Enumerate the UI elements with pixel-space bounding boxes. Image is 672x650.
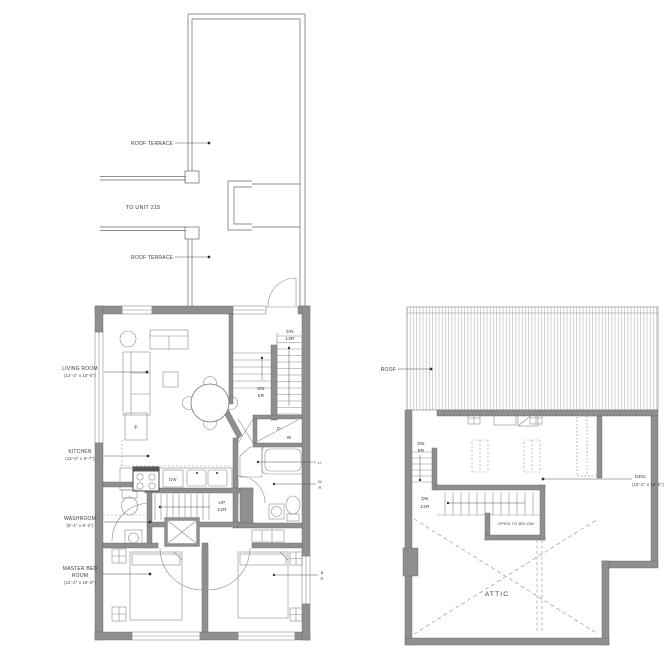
entry-door-swing <box>268 278 296 306</box>
roof-terrace-label-upper: ROOF TERRACE <box>131 141 210 147</box>
kitchen-dim: (12'-0" x 9'-7") <box>65 456 95 461</box>
up-12r-label-line1: UP <box>218 500 225 506</box>
stairs-dn-12r: DN 12R <box>420 492 543 515</box>
stair-stringer <box>271 345 277 420</box>
plant <box>120 331 136 347</box>
furnace-closet: F <box>125 413 147 440</box>
master-bedroom <box>112 548 202 621</box>
bathroom-sink <box>269 504 284 519</box>
bedroom-tag: B R <box>273 570 324 581</box>
bedroom-tag-line2: R <box>320 576 323 581</box>
coffee-table <box>163 372 178 387</box>
kitchen: DW <box>120 440 232 491</box>
living-room-dim: (14'-2" x 10'-5") <box>64 373 96 378</box>
washroom-tag: W R <box>273 479 322 490</box>
window-bedroom2-south <box>238 632 295 640</box>
roof-area <box>407 307 658 410</box>
dn-6r-label-line1: DN <box>417 441 425 447</box>
desk-dashed <box>524 440 540 472</box>
den-furniture <box>468 410 542 472</box>
washroom-label: WASHROOM (8'-4" x 8'-2") <box>64 516 151 528</box>
bed2 <box>238 552 288 618</box>
railing-strip <box>577 416 597 476</box>
window-living-room <box>95 332 103 443</box>
dining-table <box>191 384 229 422</box>
dn-5r-label-line2: 5R <box>258 393 265 399</box>
floor-plan-drawing: ROOF TERRACE TO UNIT 215 ROOF TERRACE <box>0 0 672 650</box>
dryer-label: D <box>277 426 281 432</box>
window-top-right <box>233 306 266 314</box>
kitchen-label: KITCHEN (12'-0" x 9'-7") <box>65 449 149 461</box>
sofa <box>123 352 150 415</box>
nightstand <box>112 549 126 563</box>
attic-label: ATTIC <box>485 591 509 598</box>
window-top-left <box>122 306 152 314</box>
den-label: DEN (19'-2" x 19'-0") <box>542 474 665 487</box>
washroom <box>103 490 150 546</box>
window-master-bedroom <box>132 632 200 640</box>
roof-terrace-outline <box>100 14 305 306</box>
living-room-name: LIVING ROOM <box>62 366 98 372</box>
dn-12r-label-line1: DN <box>421 496 429 502</box>
washer-label: W <box>287 435 292 441</box>
roof-terrace-lower-text: ROOF TERRACE <box>131 255 173 261</box>
open-to-below-label: OPEN TO BELOW <box>498 521 534 526</box>
dn-6r-label-line2: 6R <box>418 448 425 454</box>
stairs-dn-13r: DN 13R <box>277 329 302 420</box>
up-12r-label-line2: 12R <box>217 507 227 513</box>
roof-label-text: ROOF <box>381 367 396 373</box>
kitchen-sink <box>187 470 227 486</box>
bedroom-tag-line1: B <box>321 570 324 575</box>
dishwasher-label: DW <box>169 477 176 482</box>
dn-13r-label-line1: DN <box>286 329 294 335</box>
washer-dryer-closet: D W <box>258 420 298 441</box>
kitchen-name: KITCHEN <box>68 449 92 455</box>
toilet-powder <box>122 490 138 515</box>
attic-walls <box>403 410 658 645</box>
roof-terrace-upper-text: ROOF TERRACE <box>131 141 173 147</box>
washroom-name: WASHROOM <box>64 516 96 522</box>
desk-dashed <box>472 440 488 472</box>
roof-terrace-label-lower: ROOF TERRACE <box>131 255 210 261</box>
dn-12r-label-line2: 12R <box>420 504 430 510</box>
master-name-line1: MASTER BED <box>63 566 98 572</box>
stairs-up-12r: UP 12R <box>155 494 227 520</box>
master-name-line2: ROOM <box>72 573 88 579</box>
bathtub <box>262 446 304 474</box>
range <box>133 467 159 491</box>
bedroom2-closet <box>252 530 284 542</box>
right-floor-plan: ROOF <box>381 307 665 645</box>
living-room: F <box>120 330 238 440</box>
nightstand <box>290 552 302 565</box>
stairs-dn-5r: DN 5R <box>233 353 271 399</box>
master-bedroom-label: MASTER BED ROOM (12'-2" x 10'-0") <box>63 566 152 585</box>
nightstand <box>112 607 126 621</box>
den-dim: (19'-2" x 19'-0") <box>632 482 664 487</box>
washroom-tag-line2: R <box>318 485 321 490</box>
linen-tag: LI <box>257 460 322 465</box>
toilet-bathroom <box>286 496 300 521</box>
roof-break-line <box>537 540 542 632</box>
bedroom-partition-wall <box>202 543 208 632</box>
left-floor-plan: ROOF TERRACE TO UNIT 215 ROOF TERRACE <box>62 14 323 640</box>
master-dim: (12'-2" x 10'-0") <box>64 580 96 585</box>
living-room-label: LIVING ROOM (14'-2" x 10'-5") <box>62 366 148 378</box>
dn-13r-label-line2: 13R <box>285 336 295 342</box>
to-unit-215-label: TO UNIT 215 <box>126 205 161 211</box>
bifold-closet <box>238 419 253 443</box>
furnace-label: F <box>134 425 137 431</box>
washroom-tag-line1: W <box>318 479 322 484</box>
master-bed <box>130 552 182 620</box>
window-bedroom2-east <box>302 556 310 604</box>
linen-tag-text: LI <box>318 460 322 465</box>
dishwasher: DW <box>163 470 183 487</box>
nightstand <box>290 608 302 621</box>
dn-5r-label-line1: DN <box>257 386 265 392</box>
loveseat <box>150 330 188 349</box>
den-name: DEN <box>635 474 646 480</box>
shaft <box>166 519 198 545</box>
washroom-dim: (8'-4" x 8'-2") <box>67 523 94 528</box>
